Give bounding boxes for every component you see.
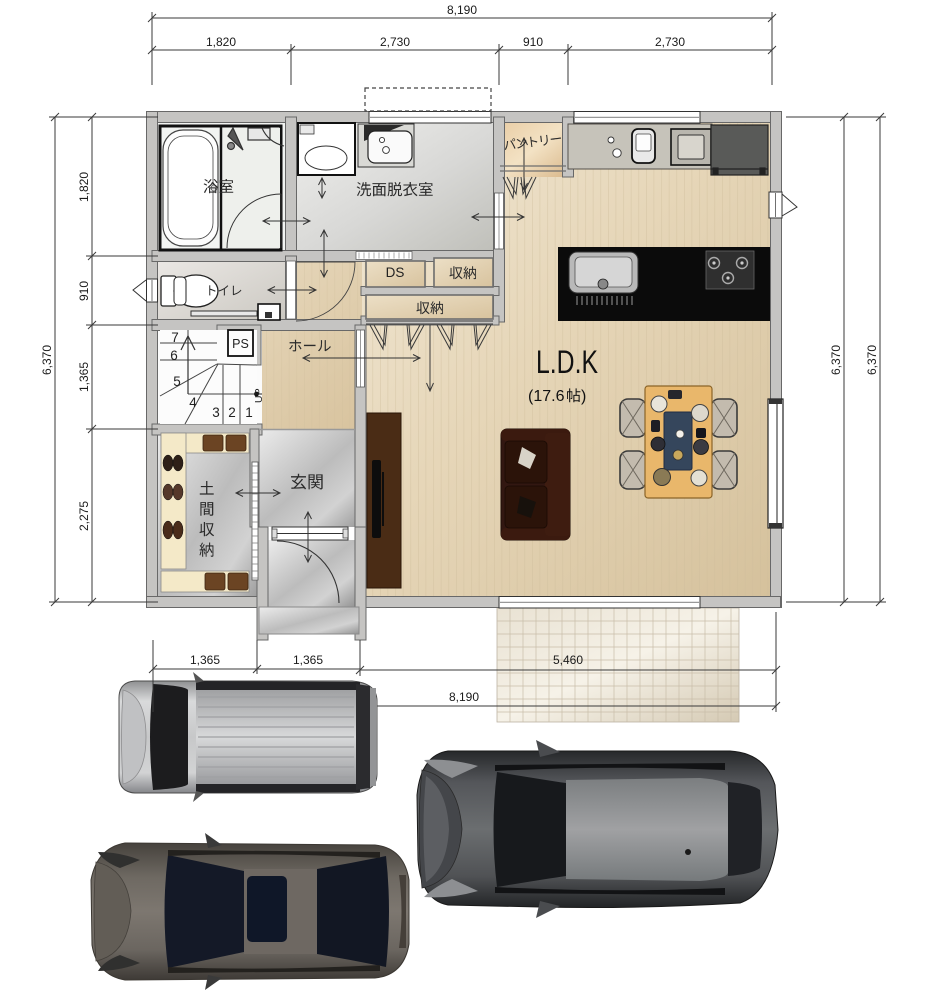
svg-text:6,370: 6,370 — [829, 345, 843, 375]
svg-text:910: 910 — [77, 281, 91, 301]
svg-text:8,190: 8,190 — [449, 690, 479, 704]
svg-text:1,365: 1,365 — [293, 653, 323, 667]
svg-text:3: 3 — [212, 405, 220, 420]
svg-text:2,275: 2,275 — [77, 501, 91, 531]
svg-text:L.D.K: L.D.K — [536, 344, 598, 380]
svg-text:2: 2 — [228, 405, 236, 420]
svg-text:2,730: 2,730 — [380, 35, 410, 49]
svg-text:7: 7 — [171, 330, 179, 345]
svg-text:5: 5 — [173, 374, 181, 389]
svg-text:8,190: 8,190 — [447, 3, 477, 17]
svg-text:5,460: 5,460 — [553, 653, 583, 667]
svg-text:6,370: 6,370 — [865, 345, 879, 375]
svg-text:(17.6: (17.6 — [528, 388, 565, 405]
svg-text:1,365: 1,365 — [77, 362, 91, 392]
svg-text:2,730: 2,730 — [655, 35, 685, 49]
svg-text:1,820: 1,820 — [77, 172, 91, 202]
svg-text:4: 4 — [189, 395, 197, 410]
svg-text:): ) — [581, 388, 586, 405]
svg-text:PS: PS — [232, 337, 249, 351]
svg-text:UP: UP — [253, 388, 265, 403]
svg-text:1,365: 1,365 — [190, 653, 220, 667]
svg-text:6,370: 6,370 — [40, 345, 54, 375]
svg-text:6: 6 — [170, 348, 178, 363]
svg-text:1,820: 1,820 — [206, 35, 236, 49]
svg-text:1: 1 — [245, 405, 253, 420]
svg-text:DS: DS — [386, 265, 405, 280]
svg-text:910: 910 — [523, 35, 543, 49]
